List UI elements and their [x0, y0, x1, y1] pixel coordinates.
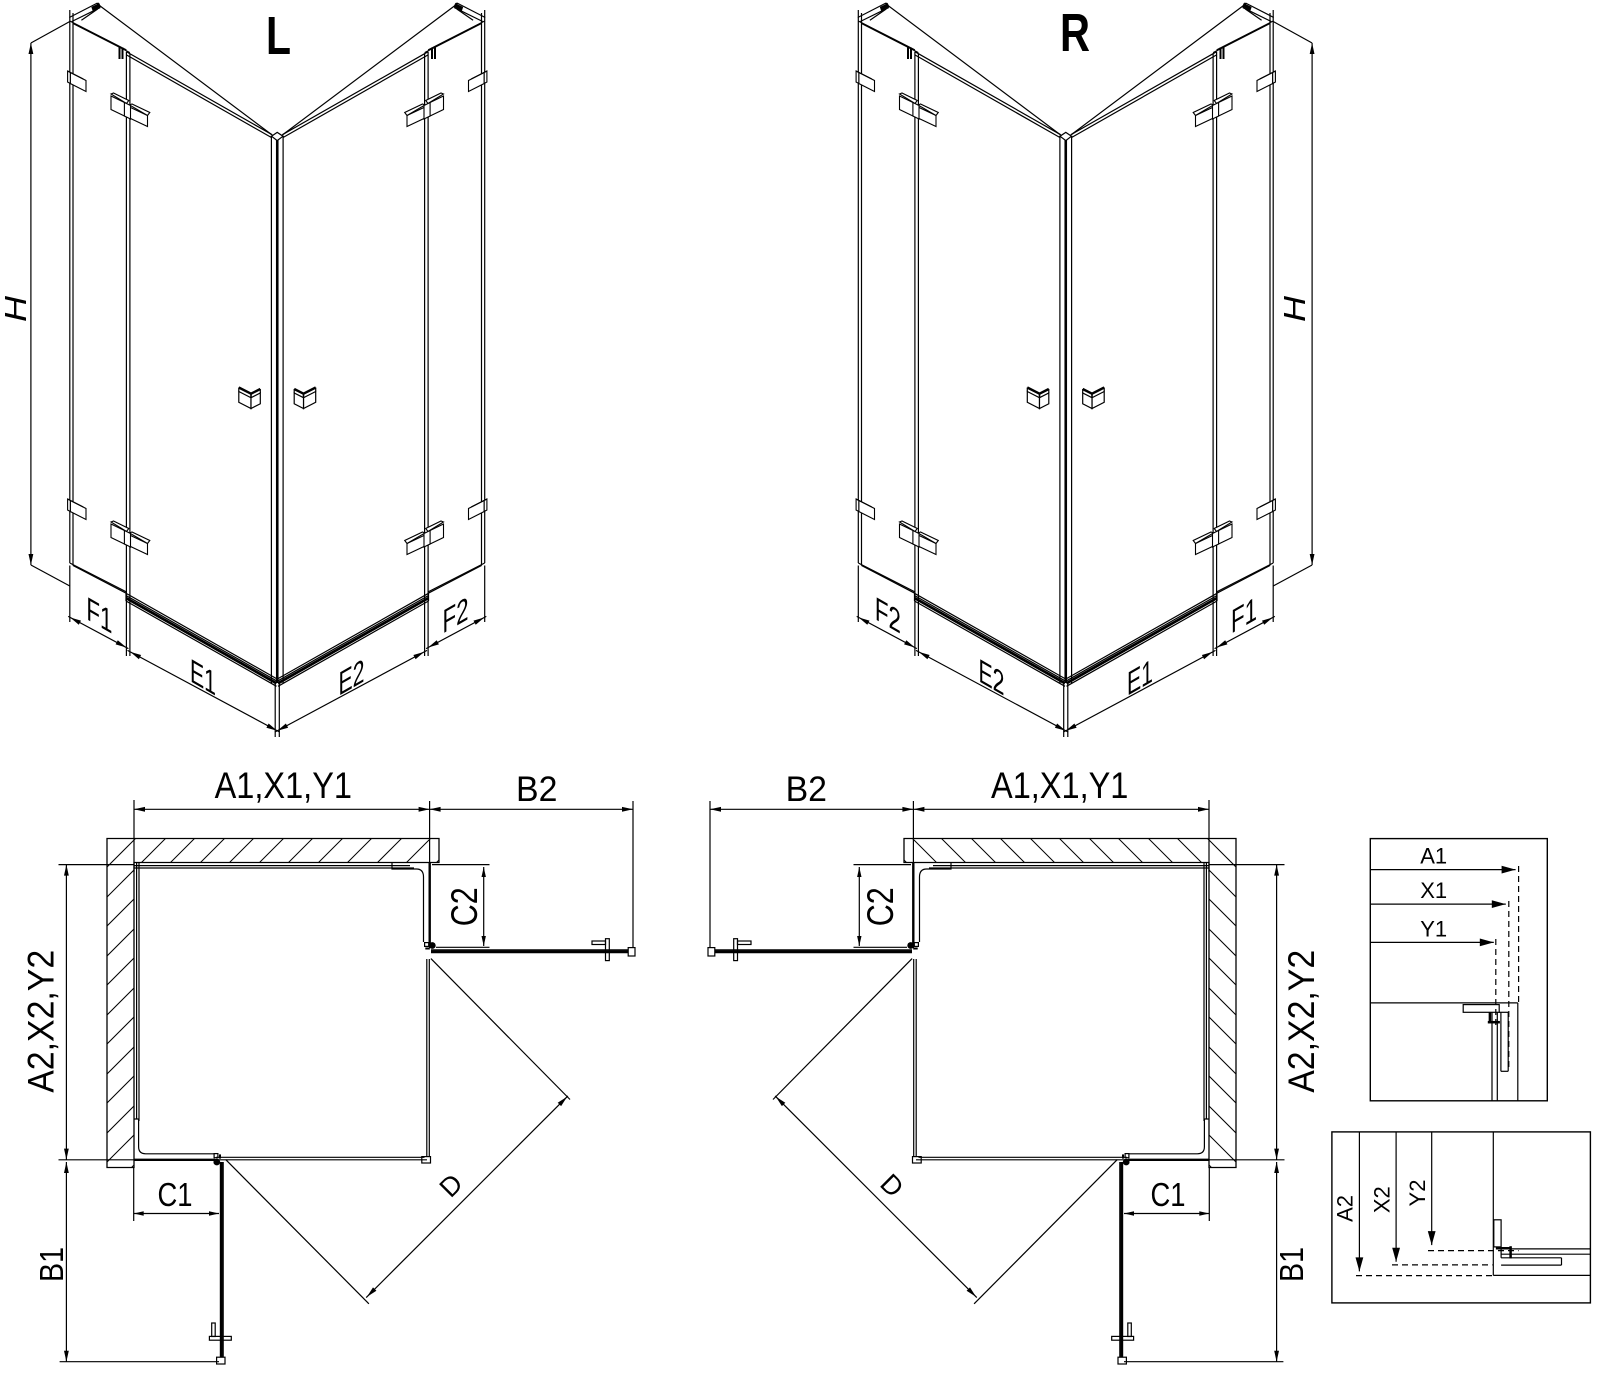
svg-text:A2: A2: [1333, 1195, 1358, 1222]
svg-text:B1: B1: [33, 1247, 70, 1282]
svg-text:L: L: [266, 6, 291, 66]
svg-text:R: R: [1060, 3, 1090, 63]
svg-text:H: H: [1277, 295, 1312, 322]
svg-text:B2: B2: [516, 770, 557, 809]
svg-text:Y2: Y2: [1405, 1180, 1430, 1207]
svg-text:C2: C2: [444, 887, 485, 926]
svg-text:H: H: [0, 295, 33, 322]
svg-text:Y1: Y1: [1420, 917, 1447, 942]
svg-text:A2,X2,Y2: A2,X2,Y2: [21, 950, 62, 1093]
svg-text:C1: C1: [158, 1176, 193, 1213]
svg-text:A1: A1: [1420, 844, 1447, 869]
svg-text:C1: C1: [1151, 1176, 1186, 1213]
svg-text:C2: C2: [860, 887, 901, 926]
svg-text:X1: X1: [1420, 878, 1447, 903]
svg-text:A2,X2,Y2: A2,X2,Y2: [1281, 950, 1322, 1093]
svg-text:B1: B1: [1273, 1247, 1310, 1282]
svg-text:A1,X1,Y1: A1,X1,Y1: [991, 765, 1128, 806]
svg-text:A1,X1,Y1: A1,X1,Y1: [215, 765, 352, 806]
svg-text:X2: X2: [1369, 1186, 1394, 1213]
svg-text:B2: B2: [786, 770, 827, 809]
